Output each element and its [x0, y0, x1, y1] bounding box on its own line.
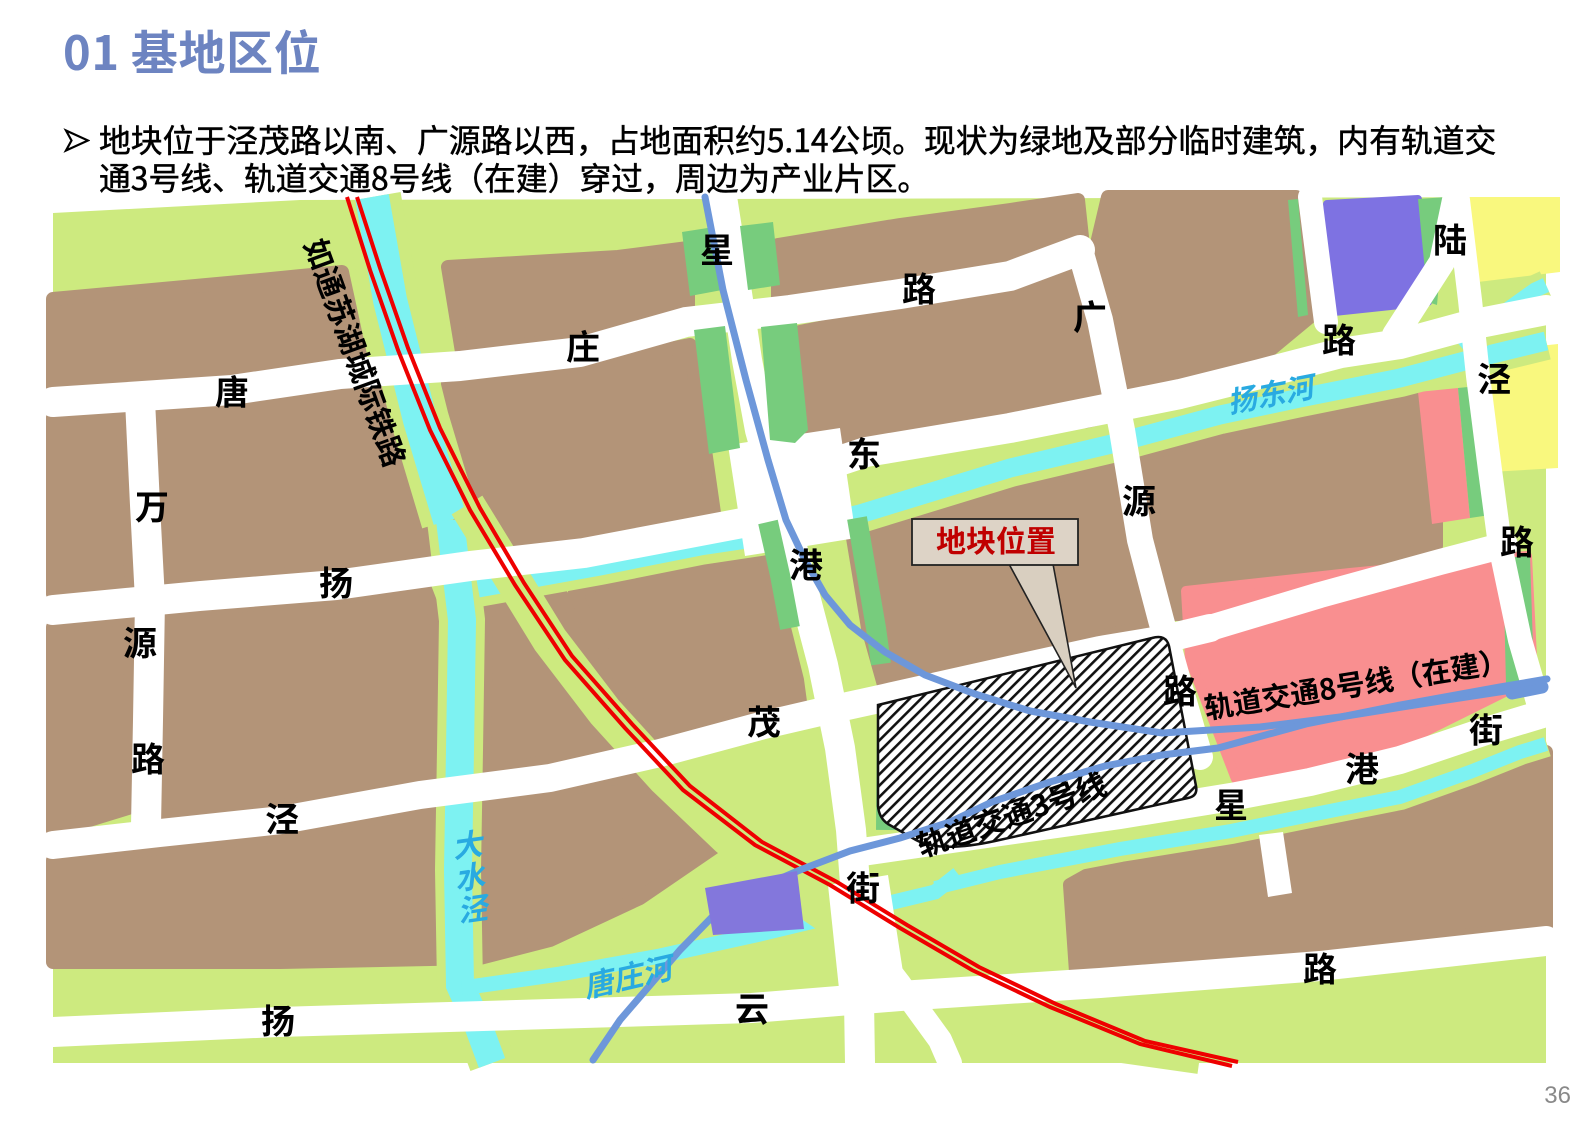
svg-text:泾: 泾	[1477, 353, 1511, 402]
svg-text:路: 路	[1500, 516, 1534, 565]
svg-text:地块位置: 地块位置	[936, 517, 1056, 561]
svg-text:陆: 陆	[1433, 214, 1467, 263]
svg-text:港: 港	[1345, 743, 1379, 792]
svg-text:街: 街	[846, 862, 880, 911]
svg-text:扬: 扬	[261, 995, 295, 1044]
svg-text:扬: 扬	[319, 557, 353, 606]
svg-text:星: 星	[1214, 779, 1248, 828]
svg-text:路: 路	[131, 733, 165, 782]
svg-text:源: 源	[1122, 475, 1156, 524]
svg-text:广: 广	[1073, 291, 1107, 340]
svg-text:庄: 庄	[566, 321, 600, 370]
svg-text:路: 路	[1322, 314, 1356, 363]
svg-text:港: 港	[789, 539, 823, 588]
svg-text:万: 万	[135, 481, 169, 530]
svg-text:星: 星	[700, 224, 734, 273]
svg-text:东: 东	[847, 428, 881, 477]
svg-text:路: 路	[902, 263, 936, 312]
svg-text:路: 路	[1303, 943, 1337, 992]
svg-text:源: 源	[123, 617, 157, 666]
svg-text:街: 街	[1469, 704, 1503, 753]
svg-text:云: 云	[735, 983, 769, 1032]
svg-text:泾: 泾	[265, 793, 299, 842]
svg-text:茂: 茂	[747, 696, 781, 745]
svg-text:路: 路	[1163, 665, 1197, 714]
svg-text:唐: 唐	[215, 366, 249, 415]
